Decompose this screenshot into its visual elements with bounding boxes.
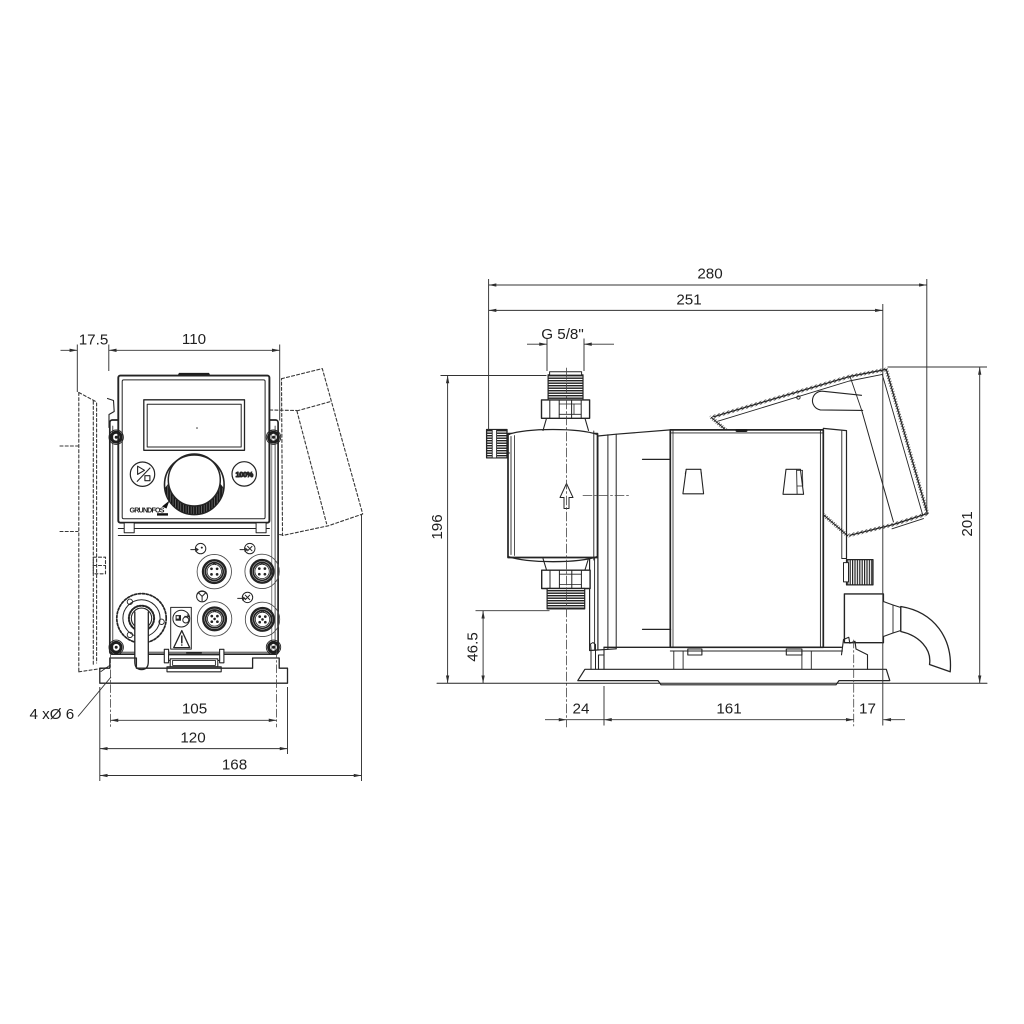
- svg-text:196: 196: [429, 514, 446, 539]
- svg-text:201: 201: [959, 511, 976, 536]
- svg-text:G 5/8": G 5/8": [541, 326, 584, 343]
- svg-text:110: 110: [182, 331, 206, 348]
- svg-text:17: 17: [859, 701, 876, 718]
- svg-text:168: 168: [222, 757, 247, 774]
- svg-text:251: 251: [676, 292, 701, 309]
- svg-text:161: 161: [716, 701, 741, 718]
- svg-text:280: 280: [697, 266, 722, 283]
- svg-text:46.5: 46.5: [465, 632, 482, 662]
- svg-text:100%: 100%: [236, 470, 254, 479]
- svg-text:120: 120: [180, 730, 205, 747]
- svg-text:17.5: 17.5: [79, 332, 109, 349]
- svg-text:24: 24: [573, 701, 590, 718]
- svg-text:105: 105: [182, 701, 207, 718]
- svg-text:4 xØ 6: 4 xØ 6: [30, 706, 75, 723]
